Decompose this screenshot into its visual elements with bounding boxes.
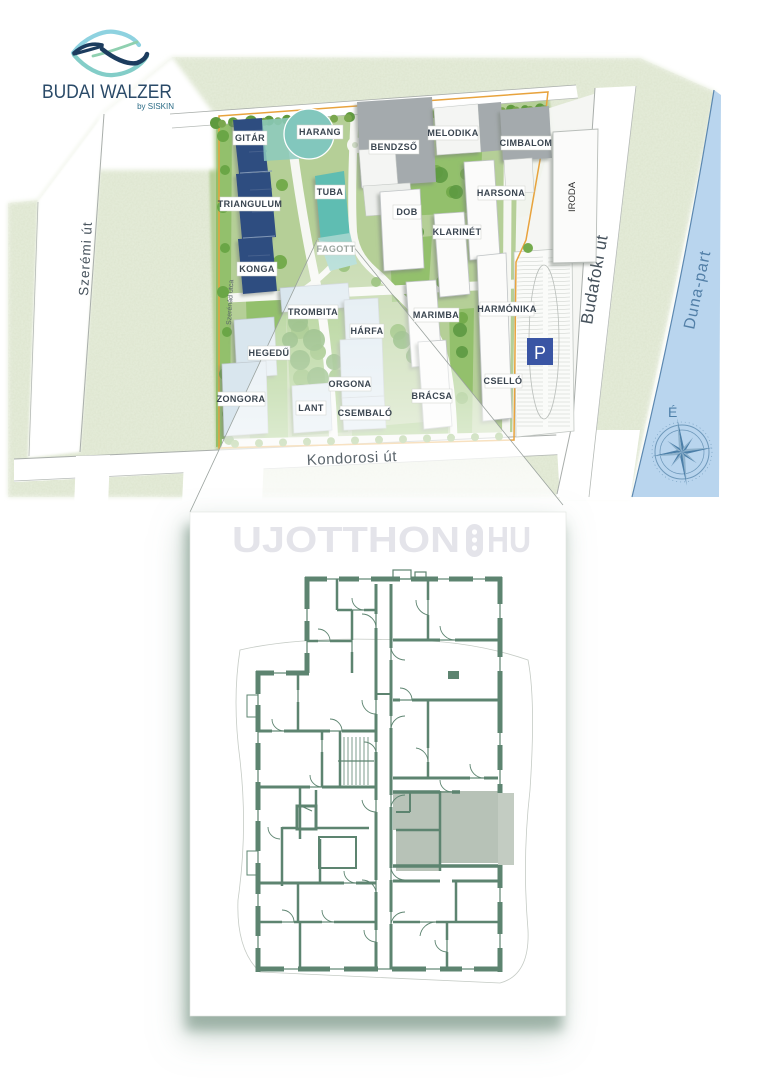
svg-text:CSEMBALÓ: CSEMBALÓ bbox=[338, 407, 393, 418]
svg-text:BRÁCSA: BRÁCSA bbox=[412, 391, 453, 401]
svg-text:LANT: LANT bbox=[298, 403, 324, 413]
svg-text:É: É bbox=[668, 404, 677, 420]
svg-text:by SISKIN: by SISKIN bbox=[137, 102, 174, 111]
svg-text:KLARINÉT: KLARINÉT bbox=[433, 227, 482, 237]
svg-text:UJOTTHON: UJOTTHON bbox=[232, 519, 460, 560]
svg-text:TUBA: TUBA bbox=[317, 187, 344, 197]
svg-text:CSELLÓ: CSELLÓ bbox=[484, 375, 523, 386]
svg-text:HÁRFA: HÁRFA bbox=[351, 326, 384, 336]
svg-text:DOB: DOB bbox=[396, 207, 417, 217]
svg-text:HARANG: HARANG bbox=[299, 127, 341, 137]
svg-text:BUDAI WALZER: BUDAI WALZER bbox=[42, 81, 172, 103]
svg-text:IRODA: IRODA bbox=[567, 181, 578, 212]
svg-text:TROMBITA: TROMBITA bbox=[288, 307, 338, 317]
svg-text:P: P bbox=[534, 343, 546, 363]
svg-text:MARIMBA: MARIMBA bbox=[413, 310, 459, 320]
svg-text:FAGOTT: FAGOTT bbox=[317, 244, 356, 254]
svg-text:HARMÓNIKA: HARMÓNIKA bbox=[477, 303, 537, 314]
svg-text:ORGONA: ORGONA bbox=[329, 379, 372, 389]
svg-text:ZONGORA: ZONGORA bbox=[217, 394, 266, 404]
svg-text:CIMBALOM: CIMBALOM bbox=[500, 138, 553, 148]
svg-text:HU: HU bbox=[487, 519, 531, 560]
svg-text:GITÁR: GITÁR bbox=[235, 133, 265, 143]
svg-text:KONGA: KONGA bbox=[239, 264, 275, 274]
svg-text:MELODIKA: MELODIKA bbox=[427, 128, 478, 138]
svg-text:HARSONA: HARSONA bbox=[477, 188, 525, 198]
svg-text:HEGEDŰ: HEGEDŰ bbox=[249, 347, 290, 358]
svg-text:BENDZSŐ: BENDZSŐ bbox=[371, 141, 418, 152]
svg-text:TRIANGULUM: TRIANGULUM bbox=[218, 199, 283, 209]
